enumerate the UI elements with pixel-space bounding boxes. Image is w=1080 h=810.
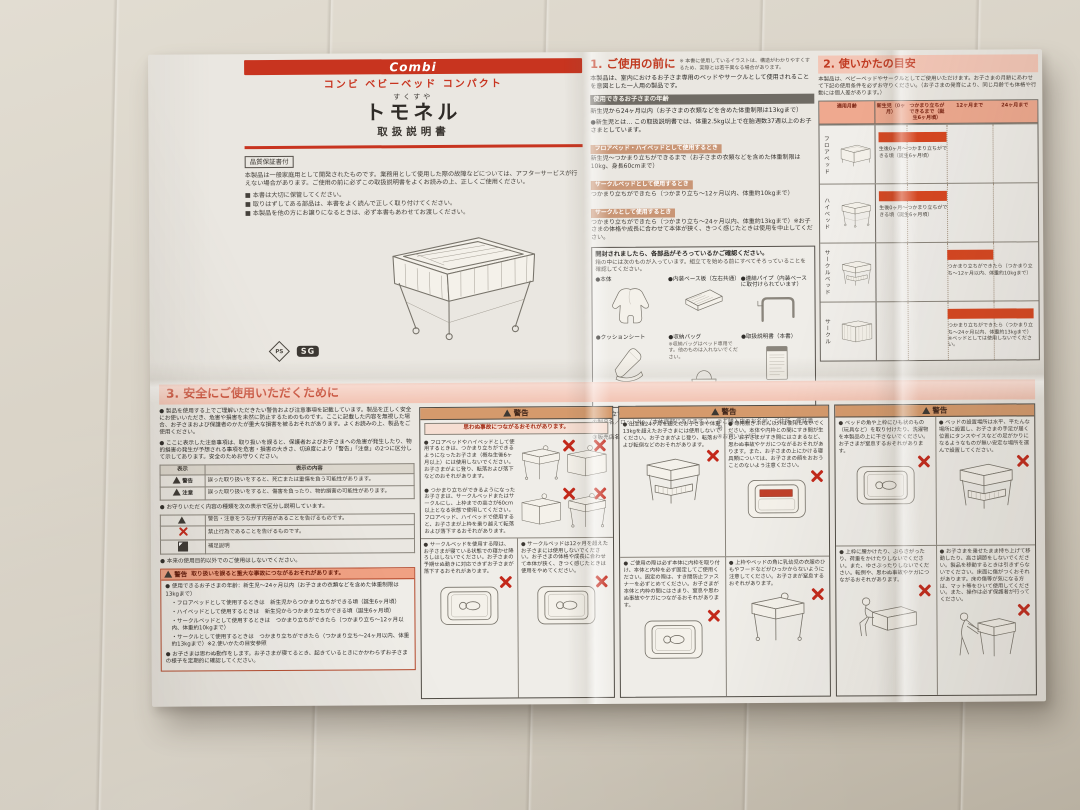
- usage-table-header: 適用月齢 新生児（0ヶ月） つかまり立ちができるまで（誕生6ヶ月頃） 12ヶ月ま…: [819, 101, 1037, 125]
- warranty-badge: 品質保証書付: [245, 156, 294, 169]
- prohibited-x-icon: [811, 588, 824, 601]
- prohibited-x-icon: [499, 576, 512, 589]
- mode-band: サークルとして使用するとき: [591, 209, 675, 218]
- mode-label: ハイベッド: [822, 197, 829, 230]
- circle-icon: [840, 317, 874, 347]
- part-item: ●内装ベース板（左右共通）: [668, 276, 739, 333]
- warning-panel-header: 警告: [420, 406, 613, 420]
- usage-table: 適用月齢 新生児（0ヶ月） つかまり立ちができるまで（誕生6ヶ月頃） 12ヶ月ま…: [818, 100, 1040, 362]
- product-name: トモネル: [244, 101, 582, 124]
- warning-item: ● ベッドの角や上枠にひも状のもの（玩具など）を取り付けたり、洗濯物を本製品の上…: [835, 417, 935, 545]
- masthead-notes: ■ 本書は大切に保管してください。 ■ 取りはずしてある部品は、本書をよく読んで…: [245, 190, 583, 218]
- combi-logo: Combi: [389, 59, 436, 73]
- safety-intro-column: ● 製品を使用する上でご理解いただきたい警告および注意事項を記載しています。製品…: [159, 407, 415, 701]
- prohibited-x-icon: [1016, 454, 1029, 467]
- warning-text: ・サークルベッドとして使用するときは つかまり立ちができたら（つかまり立ち～12…: [171, 617, 410, 633]
- masthead: Combi コンビ ベビーベッド コンパクト すくすや トモネル 取扱説明書 品…: [244, 58, 584, 372]
- safety-intro-2: ● ここに表示した注意事項は、取り扱いを誤ると、保護者およびお子さまへの危害が発…: [159, 439, 414, 462]
- prohibited-x-icon: [1017, 604, 1030, 617]
- warning-triangle-icon: [172, 489, 180, 496]
- warning-item: ● フロアベッドやハイベッドとして使用するときは、つかまり立ちができるようになっ…: [420, 437, 613, 486]
- section1-note: ※ 本書に使用しているイラストは、構造がわかりやすくするため、実際とは若干異なる…: [679, 58, 814, 72]
- warning-triangle-icon: [172, 477, 180, 484]
- supplement-icon: [178, 541, 188, 551]
- usage-period-bar: [947, 250, 992, 260]
- child-in-high-bed-icon: [746, 592, 810, 644]
- warning-panel-header: 警告: [835, 404, 1034, 418]
- brand-banner: Combi: [244, 58, 582, 75]
- warning-text: ● お子さまは思わぬ動作をします。お子さまが寝てるとき、起きているときにかかわら…: [166, 650, 411, 666]
- section-before-use: 1. ご使用の前に ※ 本書に使用しているイラストは、構造がわかりやすくするため…: [590, 56, 816, 369]
- person-lifting-bed-icon: [954, 608, 1018, 660]
- child-in-low-bed-icon: [519, 491, 563, 531]
- part-item: ●連結パイプ（内装ベースに取付けられています）: [741, 275, 812, 332]
- signal-word-table: 表示 表示の内容 警告 誤った取り扱いをすると、死亡または重傷を負う可能性があり…: [160, 464, 415, 501]
- crib-illustration: [349, 216, 576, 345]
- warning-item: ● つかまり立ちができるようになったお子さまは、サークルベッドまたはサークルにし…: [420, 485, 613, 538]
- section2-intro: 本製品は、ベビーベッドやサークルとしてご使用いただけます。お子さまの月齢にあわせ…: [818, 76, 1038, 98]
- part-baseboard-icon: [677, 284, 729, 326]
- usage-period-caption: 生後0ヶ月～つかまり立ちができる頃（誕生6ヶ月頃）: [879, 205, 950, 218]
- parts-title: 開封されましたら、各部品がそろっているかご確認ください。: [595, 250, 811, 259]
- bed-mattress-top-view-icon: [745, 473, 809, 525]
- purpose-note: ● 本来の使用目的以外でのご使用はしないでください。: [160, 557, 415, 566]
- mode-text: 新生児～つかまり立ちができるまで（お子さまの衣類などを含めた体重制限は10kg、…: [591, 154, 815, 171]
- usage-period-caption: つかまり立ちができたら（つかまり立ち～12ヶ月以内、体重約10kgまで）: [948, 264, 1036, 277]
- mode-band: サークルベッドとして使用するとき: [591, 180, 693, 189]
- age-line: ●新生児とは… この取扱説明書では、体重2.5kg以上で在胎週数37週以上のお子…: [590, 118, 814, 135]
- prohibited-x-icon: [594, 487, 607, 500]
- usage-period-caption: 生後0ヶ月～つかまり立ちができる頃（誕生6ヶ月頃）: [879, 146, 950, 159]
- age-warning-box: 警告 取り扱いを誤ると重大な事故につながるおそれがあります。 ● 使用できるお子…: [160, 567, 415, 671]
- parts-subtitle: 箱の中には次のものが入っています。組立てを始める前にすべてそろっていることを確認…: [595, 259, 811, 275]
- warning-text: ● 使用できるお子さまの年齢：新生児～24ヶ月以内（お子さまの衣類などを含めた体…: [165, 583, 410, 599]
- person-sitting-on-bed-icon: [854, 588, 918, 640]
- warning-text: ・サークルとして使用するときは つかまり立ちができたら（つかまり立ち～24ヶ月以…: [172, 633, 411, 649]
- table-row: 注意 誤った取り扱いをすると、傷害を負ったり、物的損害の可能性があります。: [160, 486, 414, 500]
- mode-label: サークルベッド: [822, 250, 830, 296]
- circle-bed-icon: [953, 458, 1017, 510]
- warning-triangle-icon: [504, 409, 512, 416]
- usage-period-caption: つかまり立ちができたら（つかまり立ち～24ヶ月以内、体重約13kgまで）※ベッド…: [948, 323, 1036, 349]
- prohibited-x-icon: [178, 527, 187, 536]
- warning-item: ● ベッドの設置場所は水平、平たんな場所に設置し、お子さまの手足が届く位置にタン…: [935, 417, 1035, 545]
- bed-top-view-icon: [437, 580, 501, 632]
- mode-label: サークル: [823, 319, 830, 345]
- warning-text: ・ハイベッドとして使用するときは 新生児からつかまり立ちができる頃（誕生6ヶ月頃…: [171, 608, 410, 617]
- mode-label: フロアベッド: [822, 135, 830, 175]
- prohibited-x-icon: [918, 583, 931, 596]
- usage-period-bar: [879, 132, 947, 142]
- warning-triangle-icon: [922, 407, 930, 414]
- masthead-intro: 本製品は一般家庭用として開発されたものです。業務用として使用した際の故障などにつ…: [245, 170, 583, 188]
- sg-mark-icon: SG: [297, 346, 319, 357]
- warning-panel-3: 警告 ● ベッドの角や上枠にひも状のもの（玩具など）を取り付けたり、洗濯物を本製…: [834, 403, 1037, 696]
- prohibited-x-icon: [917, 455, 930, 468]
- sofa-seam: [95, 0, 121, 810]
- warning-item: ● お子さまを乗せたまま持ち上げて移動したり、高さ調節をしないでください。製品を…: [936, 544, 1036, 694]
- prohibited-x-icon: [563, 487, 576, 500]
- prohibited-x-icon: [811, 469, 824, 482]
- warning-triangle-icon: [711, 408, 719, 415]
- section1-intro: 本製品は、室内におけるお子さま専用のベッドやサークルとして使用されることを意図と…: [590, 74, 814, 91]
- usage-row-high-bed: ハイベッド 生後0ヶ月～つかまり立ちができる頃（誕生6ヶ月頃）: [820, 183, 1038, 243]
- age-line: 新生児から24ヶ月以内（お子さまの衣類などを含めた体重制限は13kgまで）: [590, 107, 814, 116]
- mode-text: つかまり立ちができたら（つかまり立ち～24ヶ月以内、体重約13kgまで）※お子さ…: [591, 217, 815, 242]
- warning-headline: 取り扱いを誤ると重大な事故につながるおそれがあります。: [191, 570, 344, 578]
- column-header: つかまり立ちができるまで（誕生6ヶ月頃）: [907, 101, 948, 123]
- warning-item: ● ご使用の際は必ず本体に内枠を取り付け、本体と内枠を必ず固定してご使用ください…: [620, 557, 725, 697]
- warning-item: ● 上枠に腰かけたり、ぶらさがったり、荷重をかけたりしないでください。また、ゆさ…: [836, 545, 936, 695]
- warning-item: ● サークルベッドを使用する際は、お子さまが寝ている状態での寝かせ降ろしはしない…: [420, 538, 517, 697]
- divider: [245, 144, 583, 149]
- safety-intro-1: ● 製品を使用する上でご理解いただきたい警告および注意事項を記載しています。製品…: [159, 407, 414, 438]
- prohibited-x-icon: [596, 575, 609, 588]
- manual-sheet: Combi コンビ ベビーベッド コンパクト すくすや トモネル 取扱説明書 品…: [148, 49, 1046, 706]
- prohibited-x-icon: [706, 449, 719, 462]
- warning-item: ● 専用敷きふとん以外は使用しないでください。本体や内枠との間にすき間が生じ、お…: [724, 418, 829, 557]
- section2-title: 2. 使いかたの目安: [818, 54, 1038, 74]
- symbol-note: ● お守りいただく内容の種類を次の表示で区分し説明しています。: [160, 503, 415, 512]
- photo-background: Combi コンビ ベビーベッド コンパクト すくすや トモネル 取扱説明書 品…: [0, 0, 1080, 810]
- circle-bed-icon: [839, 258, 873, 288]
- age-heading: 使用できるお子さまの年齢: [590, 94, 814, 106]
- warning-panel-2: 警告 ● 出生後24ヶ月を超えたお子さまや体重13kgを超えたお子さまには使用し…: [619, 404, 832, 697]
- mode-text: つかまり立ちができたら（つかまり立ち～12ヶ月以内、体重約10kgまで）: [591, 189, 815, 198]
- warning-triangle-icon: [178, 516, 186, 523]
- bed-top-view-icon: [853, 459, 917, 511]
- section-safety: 3. 安全にご使用いただくために ● 製品を使用する上でご理解いただきたい警告お…: [159, 379, 1037, 700]
- column-header: 新生児（0ヶ月）: [875, 101, 906, 123]
- part-pipe-icon: [750, 290, 802, 332]
- part-body-icon: [605, 284, 657, 326]
- floor-bed-icon: [839, 140, 873, 170]
- product-line: コンビ ベビーベッド コンパクト: [244, 77, 582, 92]
- part-manual-icon: [750, 342, 802, 384]
- warning-item: ● 出生後24ヶ月を超えたお子さまや体重13kgを超えたお子さまには使用しないで…: [620, 419, 725, 558]
- warning-item: ● サークルベッドは12ヶ月を超えたお子さまには使用しないでください。お子さまの…: [517, 538, 614, 697]
- circle-bed-icon: [640, 453, 704, 505]
- warning-item: ● 上枠やベッドの角に乳幼児の衣服のひもやフードなどがひっかからないように注意し…: [725, 556, 830, 696]
- column-header: 12ヶ月まで: [947, 101, 992, 123]
- certification-marks: PS SG: [272, 344, 319, 359]
- section3-title: 3. 安全にご使用いただくために: [159, 379, 1035, 404]
- warning-subheader: 思わぬ事故につながるおそれがあります。: [424, 422, 609, 434]
- usage-row-floor-bed: フロアベッド 生後0ヶ月～つかまり立ちができる頃（誕生6ヶ月頃）: [819, 124, 1037, 184]
- section1-title: 1. ご使用の前に: [590, 57, 675, 72]
- warning-text: ・フロアベッドとして使用するときは 新生児からつかまり立ちができる頃（誕生6ヶ月…: [171, 599, 410, 608]
- doc-type: 取扱説明書: [244, 125, 582, 141]
- column-header: 適用月齢: [819, 102, 875, 124]
- usage-period-bar: [948, 309, 1034, 320]
- mode-band: フロアベッド・ハイベッドとして使用するとき: [591, 145, 722, 154]
- prohibited-x-icon: [563, 439, 576, 452]
- high-bed-icon: [839, 199, 873, 229]
- usage-period-bar: [879, 191, 947, 201]
- section-usage-guide: 2. 使いかたの目安 本製品は、ベビーベッドやサークルとしてご使用いただけます。…: [818, 54, 1040, 367]
- table-row: 禁止行為であることを告げるものです。: [160, 524, 414, 540]
- child-in-high-bed-icon: [519, 443, 563, 483]
- usage-row-circle-bed: サークルベッド つかまり立ちができたら（つかまり立ち～12ヶ月以内、体重約10k…: [820, 242, 1038, 302]
- ps-mark-icon: PS: [269, 341, 290, 362]
- table-header: 表示: [160, 465, 205, 475]
- symbol-table: 警告・注意をうながす内容があることを告げるものです。 禁止行為であることを告げる…: [160, 513, 415, 555]
- warning-panel-header: 警告: [620, 405, 829, 419]
- warning-triangle-icon: [164, 571, 172, 578]
- prohibited-x-icon: [707, 609, 720, 622]
- usage-row-circle: サークル つかまり立ちができたら（つかまり立ち～24ヶ月以内、体重約13kgまで…: [821, 301, 1039, 361]
- part-item: ●本体: [595, 276, 666, 333]
- warning-label: 警告: [164, 571, 187, 580]
- bed-top-view-icon: [534, 579, 598, 631]
- table-row: 補足説明: [160, 538, 414, 554]
- column-header: 24ヶ月まで: [992, 101, 1037, 123]
- prohibited-x-icon: [594, 439, 607, 452]
- bed-top-view-icon: [641, 613, 705, 665]
- warning-panel-1: 警告 思わぬ事故につながるおそれがあります。 ● フロアベッドやハイベッドとして…: [419, 405, 616, 698]
- part-cushion-icon: [605, 342, 657, 384]
